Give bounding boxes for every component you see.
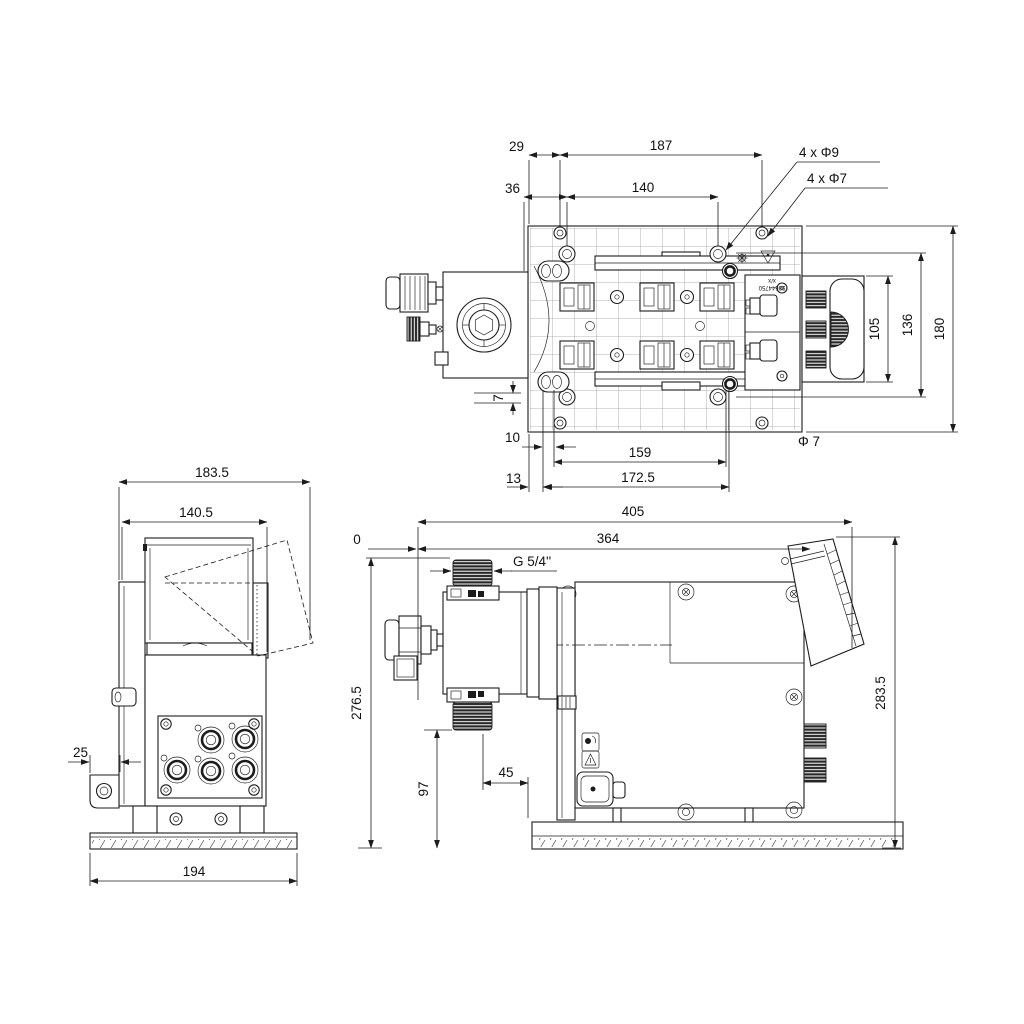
control-cube-top (802, 276, 864, 382)
foot-left (133, 806, 157, 833)
dim-label-172-5: 172.5 (621, 470, 655, 485)
dim-label-45: 45 (498, 765, 513, 780)
plug-2 (806, 321, 826, 338)
base-plate-side (90, 833, 297, 849)
dim-label-405: 405 (622, 504, 645, 519)
accessory-panel: x/x 98644750 (745, 275, 800, 390)
dim-label-283-5: 283.5 (873, 676, 888, 710)
dim-label-13: 13 (506, 471, 521, 486)
bottom-connection (447, 688, 499, 730)
side-tab (112, 688, 136, 706)
plate-marking-line2: 98644750 (758, 284, 785, 290)
control-box (145, 538, 253, 643)
dim-label-136: 136 (900, 314, 915, 337)
dim-label-25: 25 (73, 745, 88, 760)
wall-bracket (90, 775, 119, 808)
dim-label-105: 105 (867, 318, 882, 341)
connector-panel (158, 716, 262, 798)
dim-label-187: 187 (650, 138, 673, 153)
dim-label-g54: G 5/4'' (513, 554, 551, 569)
dim-label-7: 7 (491, 394, 506, 402)
head-stub (435, 352, 448, 365)
plug-1 (806, 291, 826, 308)
dim-label-10: 10 (505, 430, 520, 445)
side-plug-2 (804, 758, 826, 782)
dim-label-364: 364 (597, 531, 620, 546)
display-holder (253, 583, 268, 658)
dim-label-183-5: 183.5 (195, 465, 229, 480)
plate-marking-line1: x/x (768, 277, 776, 283)
dim-label-phi7: Φ 7 (798, 434, 820, 449)
dim-label-159: 159 (629, 445, 652, 460)
foot-right (240, 806, 264, 833)
callout-label-4xphi9: 4 x Φ9 (799, 145, 839, 160)
callout-label-4xphi7: 4 x Φ7 (807, 171, 847, 186)
plate-center-hole-right (696, 322, 705, 331)
dim-label-194: 194 (183, 864, 206, 879)
pump-dimensional-drawing: x/x 98644750 (0, 0, 1024, 1024)
plug-3 (806, 351, 826, 368)
dim-label-276-5: 276.5 (349, 686, 364, 720)
housing (557, 582, 826, 820)
dim-label-0: 0 (353, 532, 361, 547)
box-lip (147, 643, 252, 655)
dim-label-140-5: 140.5 (179, 505, 213, 520)
dim-label-97: 97 (416, 781, 431, 796)
box-notch (143, 544, 147, 551)
side-plug-1 (804, 724, 826, 748)
dim-label-29: 29 (509, 139, 524, 154)
plate-center-hole-left (586, 322, 595, 331)
dim-label-140: 140 (632, 180, 655, 195)
clip (558, 696, 576, 709)
clamp-blocks-row2 (560, 341, 734, 369)
mounting-plate: x/x 98644750 (528, 226, 802, 432)
dim-label-180: 180 (932, 318, 947, 341)
top-connection (447, 560, 499, 600)
clamp-blocks-row1 (560, 283, 734, 311)
dim-label-36: 36 (505, 181, 520, 196)
